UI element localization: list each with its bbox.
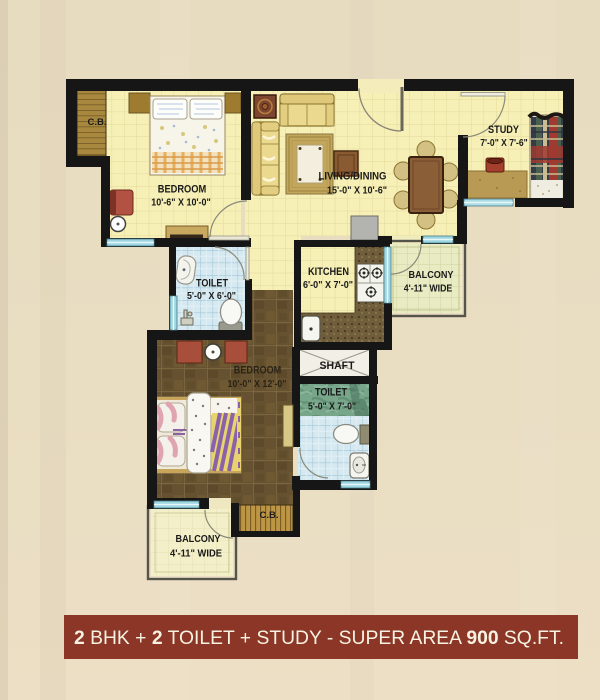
svg-text:BEDROOM: BEDROOM <box>158 184 207 196</box>
svg-text:C.B.: C.B. <box>88 117 107 128</box>
svg-text:4'-11" WIDE: 4'-11" WIDE <box>404 283 453 295</box>
svg-text:5'-0" X 7'-0": 5'-0" X 7'-0" <box>308 401 356 413</box>
svg-text:SHAFT: SHAFT <box>320 360 355 372</box>
svg-text:10'-0" X 12'-0": 10'-0" X 12'-0" <box>228 378 287 390</box>
svg-text:LIVING/DINING: LIVING/DINING <box>319 171 387 183</box>
svg-text:6'-0" X 7'-0": 6'-0" X 7'-0" <box>303 279 353 291</box>
svg-text:TOILET: TOILET <box>196 278 228 290</box>
svg-text:2 BHK + 2 TOILET + STUDY - SUP: 2 BHK + 2 TOILET + STUDY - SUPER AREA 90… <box>74 627 564 649</box>
svg-text:BALCONY: BALCONY <box>409 269 454 281</box>
svg-text:BALCONY: BALCONY <box>176 533 221 545</box>
svg-text:5'-0" X 6'-0": 5'-0" X 6'-0" <box>187 290 236 302</box>
svg-text:10'-6" X 10'-0": 10'-6" X 10'-0" <box>151 197 211 209</box>
svg-text:7'-0" X 7'-6": 7'-0" X 7'-6" <box>480 137 528 149</box>
svg-text:STUDY: STUDY <box>488 124 520 136</box>
svg-text:C.B.: C.B. <box>260 510 279 521</box>
svg-text:15'-0" X 10'-6": 15'-0" X 10'-6" <box>327 185 387 197</box>
svg-text:BEDROOM: BEDROOM <box>234 365 282 377</box>
svg-text:TOILET: TOILET <box>315 387 347 399</box>
svg-text:4'-11" WIDE: 4'-11" WIDE <box>170 548 222 560</box>
svg-text:KITCHEN: KITCHEN <box>308 266 349 278</box>
